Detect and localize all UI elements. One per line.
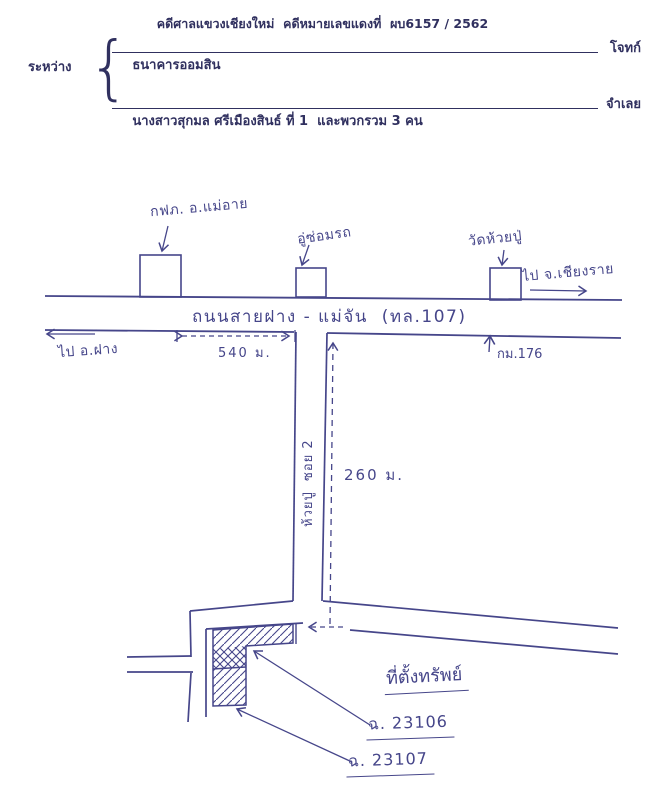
right-branch-top-edge [323,601,618,628]
between-label: ระหว่าง [28,56,71,77]
arrow-deed1 [254,651,370,725]
arrow-deed2 [237,709,352,762]
bottom-junction-roads [127,601,618,722]
defendant-line: นางสาวสุกมล ศรีเมืองสินธ์ ที่ 1 และพวกรว… [112,91,598,109]
deed-pointer-arrows [237,651,370,762]
landmark-buildings [140,255,521,300]
to-fang-label: ไป อ.ฝาง [57,338,119,364]
court-map-document: คดีศาลแขวงเชียงใหม่ คดีหมายเลขแดงที่ ผบ6… [0,0,645,800]
road-bottom-edge-right [327,333,621,338]
deed-23106-label: ฉ. 23106 [366,709,455,740]
km-176-label: กม.176 [497,343,542,364]
main-road-name-label: ถนนสายฝาง - แม่จัน (ทล.107) [192,303,466,330]
road-bottom-edge-left [45,330,294,332]
property-parcels [213,623,296,706]
plaintiff-role-label: โจทก์ [610,37,641,58]
soi-left-edge [293,332,296,601]
soi-right-edge [322,333,327,601]
distance-260-label: 260 ม. [344,463,404,487]
defendant-role-label: จำเลย [606,93,641,114]
defendant-name: นางสาวสุกมล ศรีเมืองสินธ์ ที่ 1 และพวกรว… [132,114,422,129]
plaintiff-name: ธนาคารออมสิน [132,58,220,73]
deed-23107-label: ฉ. 23107 [346,746,435,777]
road-top-edge [45,296,622,300]
garage-building-box [296,268,326,297]
plaintiff-line: ธนาคารออมสิน [112,35,598,53]
property-location-label: ที่ตั้งทรัพย์ [383,659,469,695]
left-road-outer-edge-upper [190,611,191,657]
distance-540-label: 540 ม. [218,342,272,363]
left-road-outer-edge-lower [188,673,191,722]
arrow-to-pea [162,226,168,251]
side-road-top-edge [127,656,191,657]
property-upper-section-crosshatch [213,646,246,669]
arrow-to-chiangrai [530,290,586,291]
left-branch-top-edge [190,601,293,611]
km-post-marker [489,336,490,352]
arrow-to-temple [502,250,504,265]
dashed-route-vertical [330,343,333,624]
temple-building-box [490,268,521,300]
right-branch-bottom-edge [350,630,618,654]
soi-name-label: ห้วยปู่ ซอย 2 [297,439,318,527]
pea-building-box [140,255,181,297]
